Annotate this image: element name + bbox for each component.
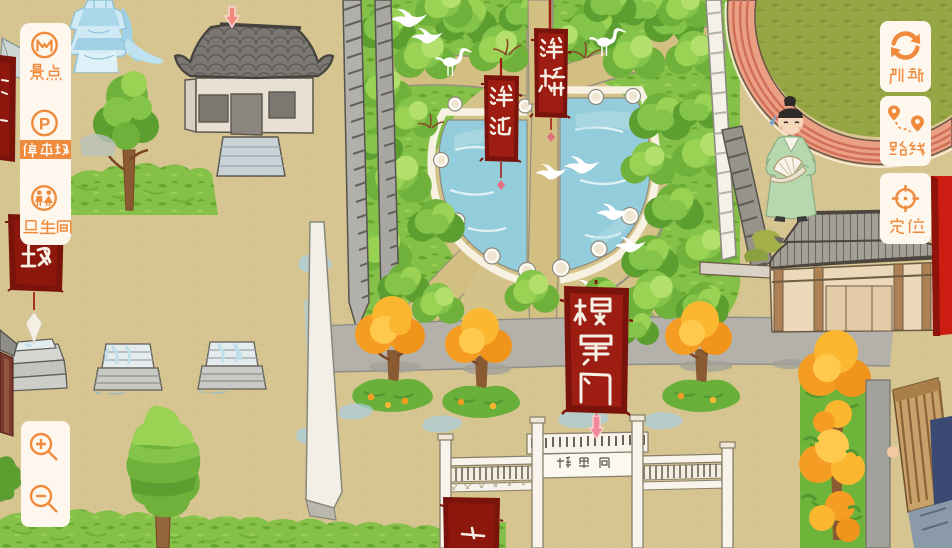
svg-text:P: P xyxy=(39,115,50,134)
